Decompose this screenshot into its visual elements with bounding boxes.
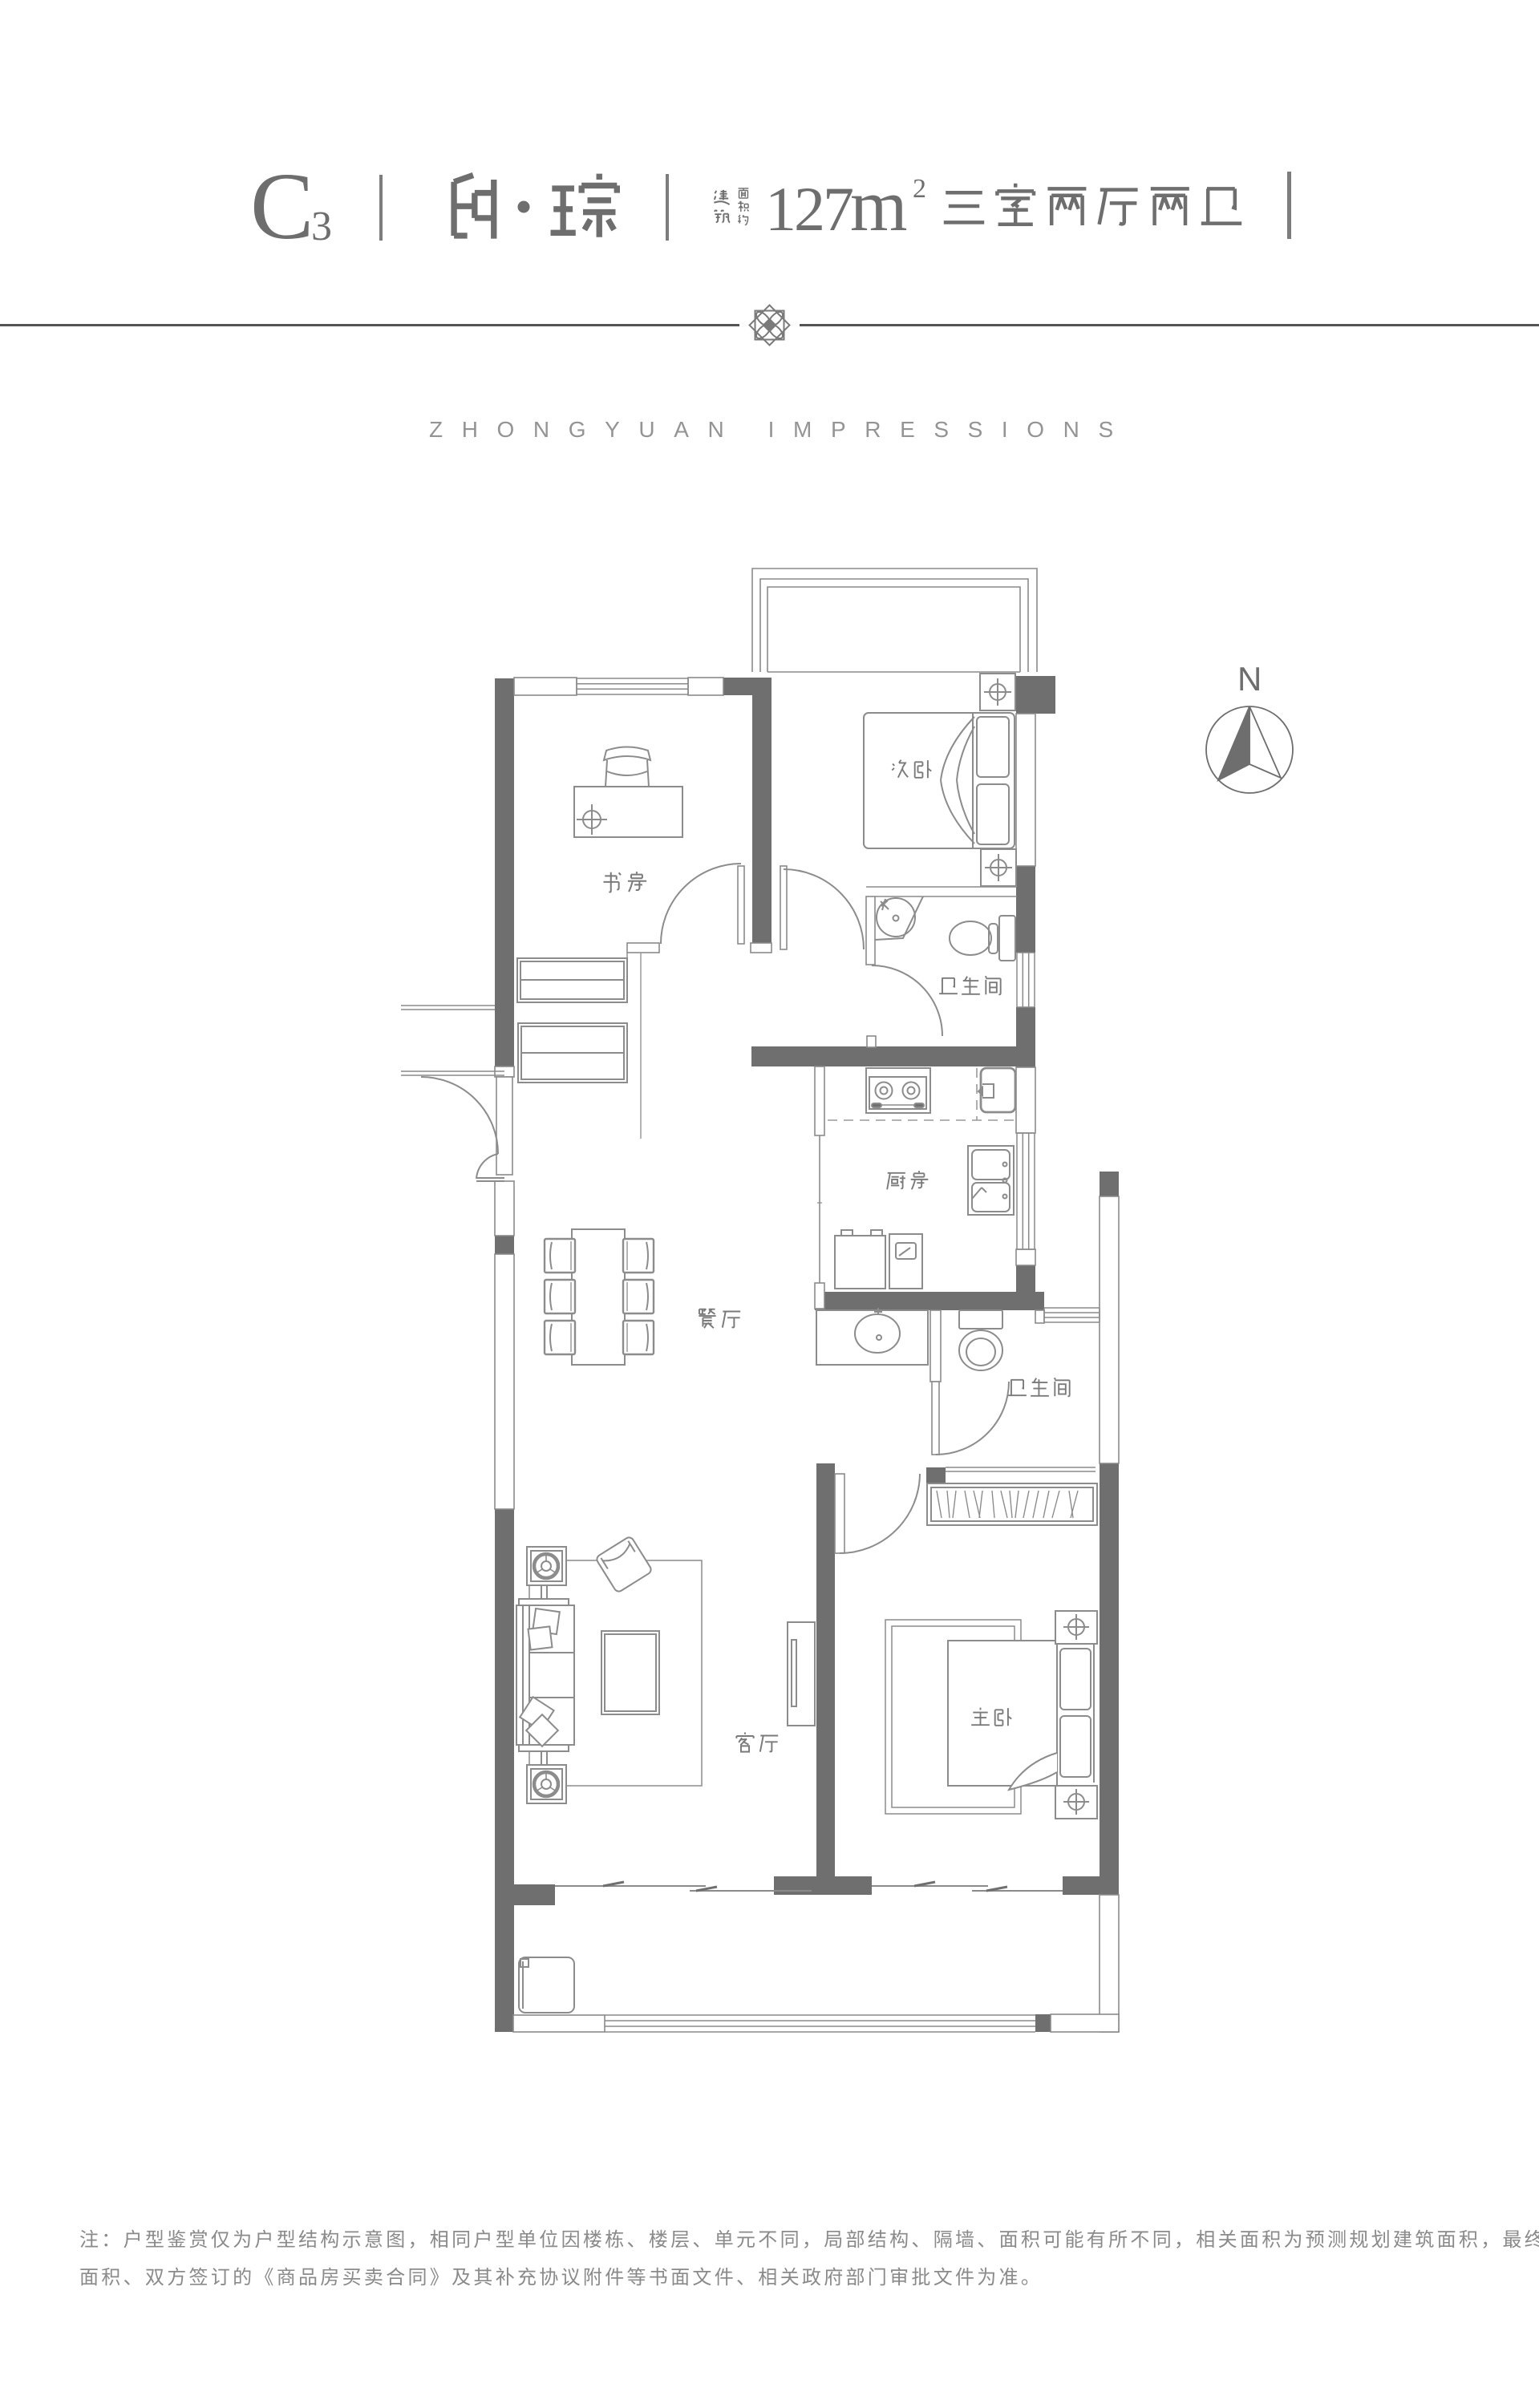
svg-text:ZHONGYUAN IMPRESSIONS: ZHONGYUAN IMPRESSIONS (429, 417, 1132, 442)
svg-text:3: 3 (311, 204, 332, 249)
svg-text:127: 127 (765, 174, 853, 244)
svg-text:2: 2 (913, 174, 926, 204)
svg-text:m: m (850, 164, 908, 246)
svg-text:注：户型鉴赏仅为户型结构示意图，相同户型单位因楼栋、楼层、单: 注：户型鉴赏仅为户型结构示意图，相同户型单位因楼栋、楼层、单元不同，局部结构、隔… (79, 2229, 1539, 2251)
svg-text:N: N (1237, 660, 1262, 698)
svg-text:C: C (250, 153, 314, 259)
svg-text:面积、双方签订的《商品房买卖合同》及其补充协议附件等书面文件: 面积、双方签订的《商品房买卖合同》及其补充协议附件等书面文件、相关政府部门审批文… (79, 2267, 1043, 2289)
